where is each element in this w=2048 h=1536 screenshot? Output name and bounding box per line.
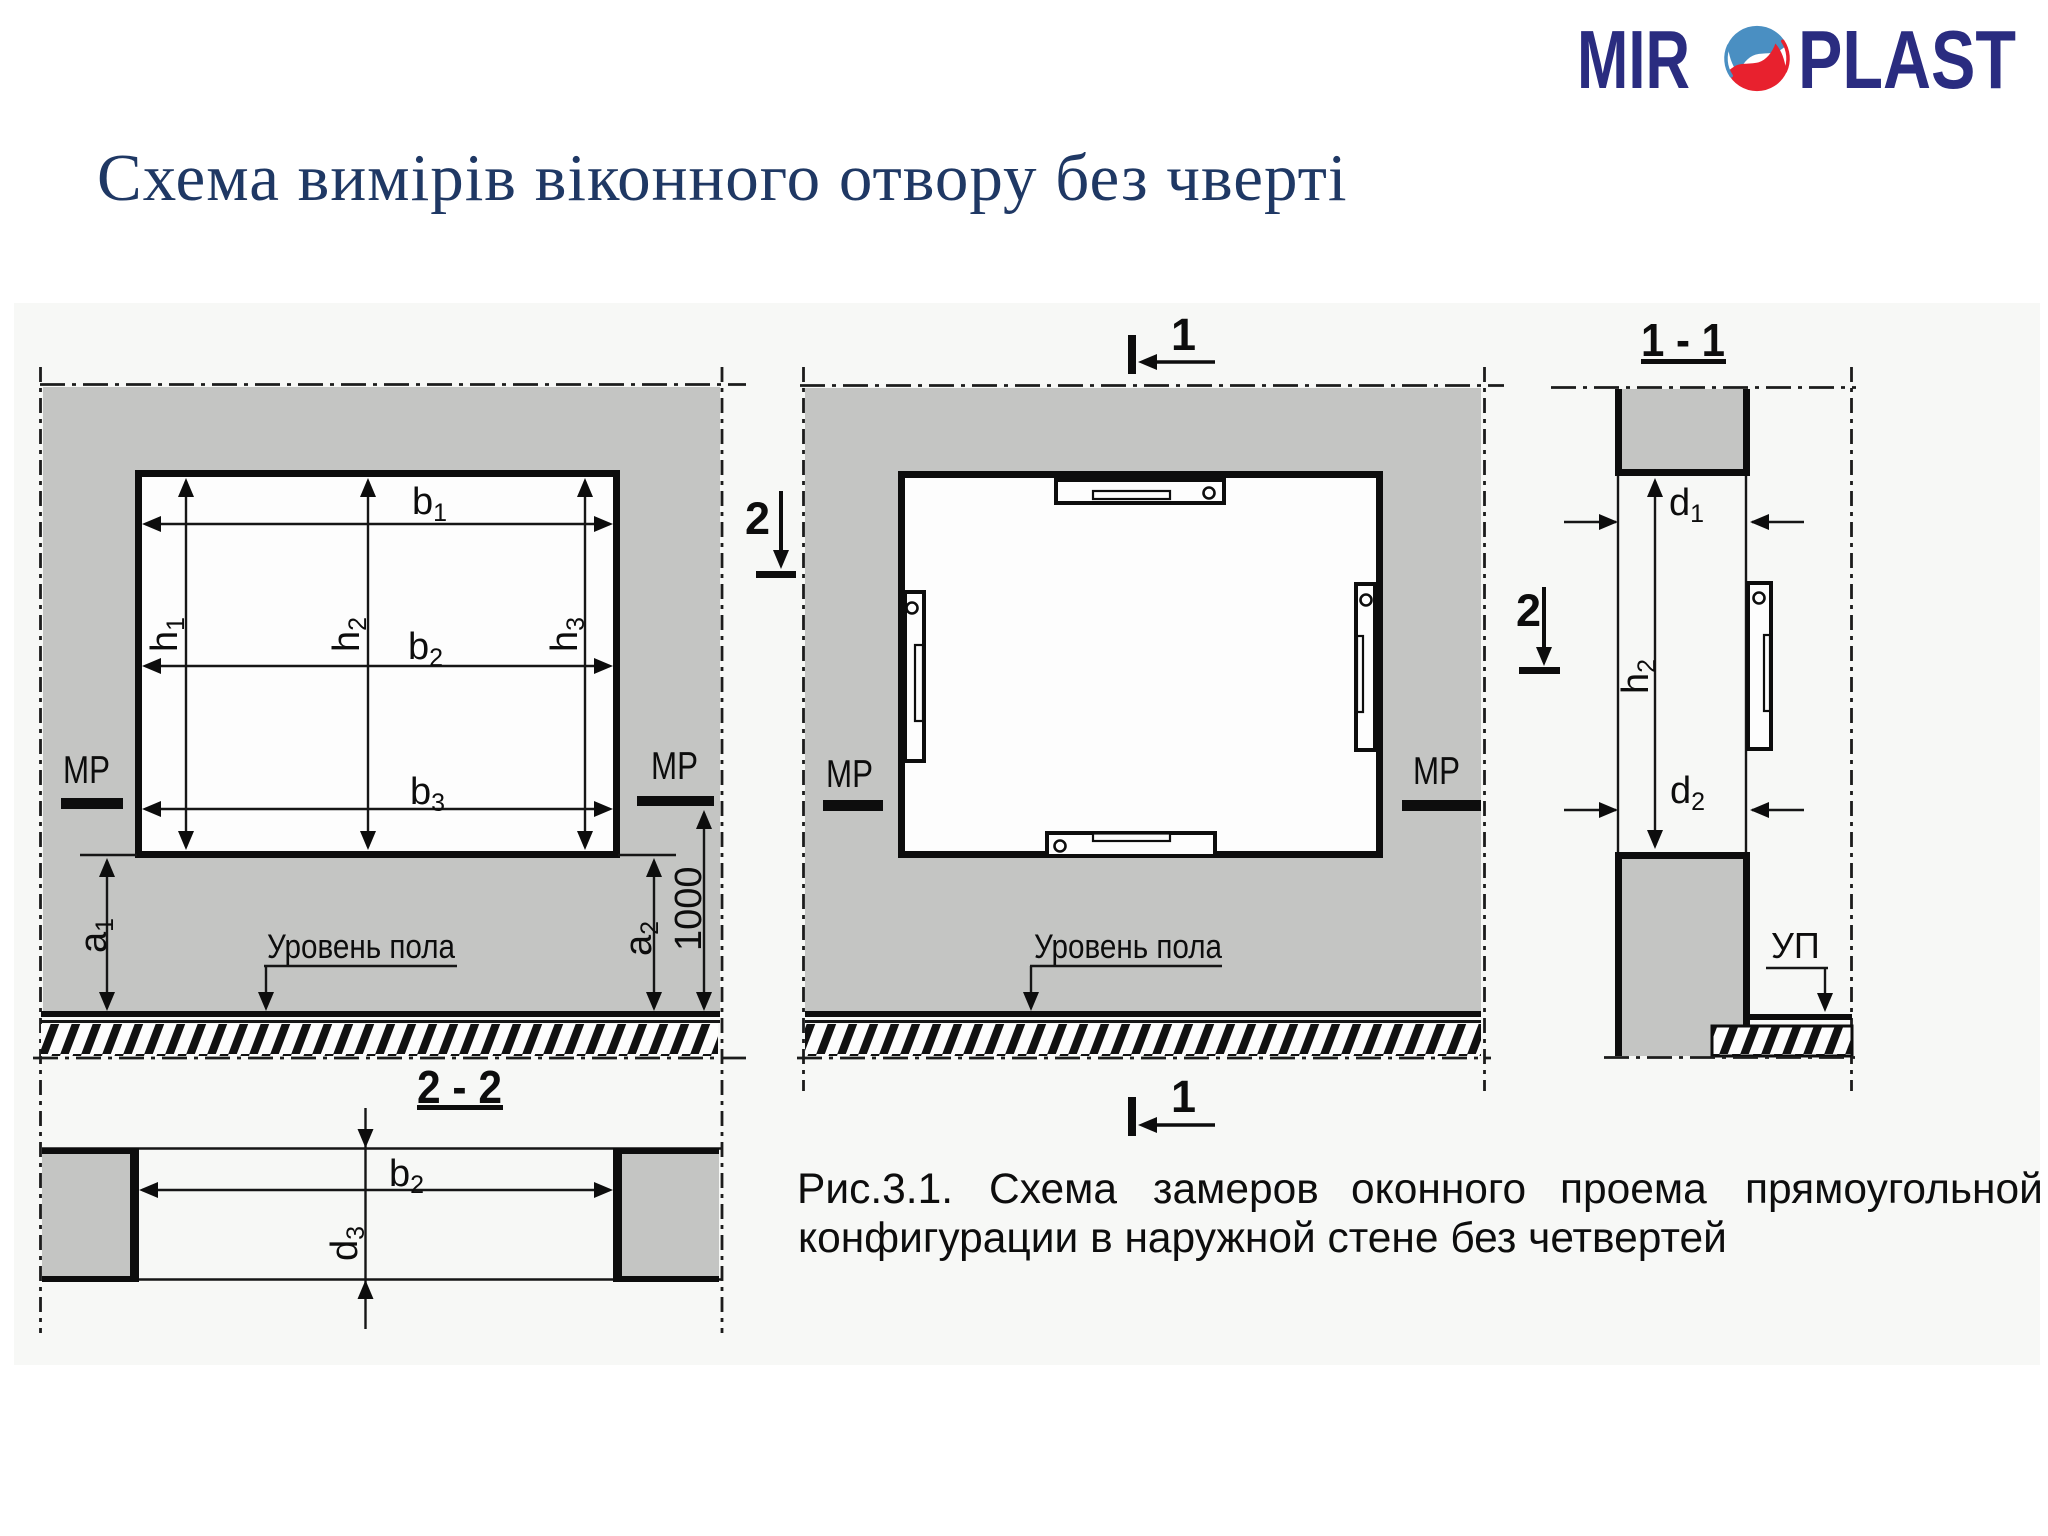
svg-text:Уровень пола: Уровень пола [1034,928,1222,966]
svg-text:прямоугольной: прямоугольной [1745,1166,2043,1213]
svg-text:2: 2 [745,493,770,544]
svg-text:PLAST: PLAST [1798,13,2016,106]
svg-text:Рис.3.1.: Рис.3.1. [797,1166,953,1213]
svg-text:замеров: замеров [1153,1166,1319,1213]
svg-text:1: 1 [1171,309,1196,360]
svg-text:1000: 1000 [668,866,710,951]
svg-text:Схема вимірів віконного отвору: Схема вимірів віконного отвору без чверт… [97,141,1347,215]
svg-text:MIR: MIR [1577,13,1690,106]
svg-text:1: 1 [1171,1071,1196,1122]
svg-text:УП: УП [1771,925,1820,966]
svg-text:Схема: Схема [989,1166,1117,1213]
svg-text:МР: МР [1413,750,1460,793]
svg-text:МР: МР [826,753,873,796]
svg-text:проема: проема [1560,1166,1707,1213]
svg-text:Уровень пола: Уровень пола [267,928,455,966]
svg-text:конфигурации в наружной стене: конфигурации в наружной стене без четвер… [798,1215,1727,1262]
svg-text:оконного: оконного [1351,1166,1526,1213]
svg-text:МР: МР [651,745,698,788]
svg-text:МР: МР [63,749,110,792]
svg-text:2: 2 [1516,585,1541,636]
svg-text:1 - 1: 1 - 1 [1641,314,1725,366]
